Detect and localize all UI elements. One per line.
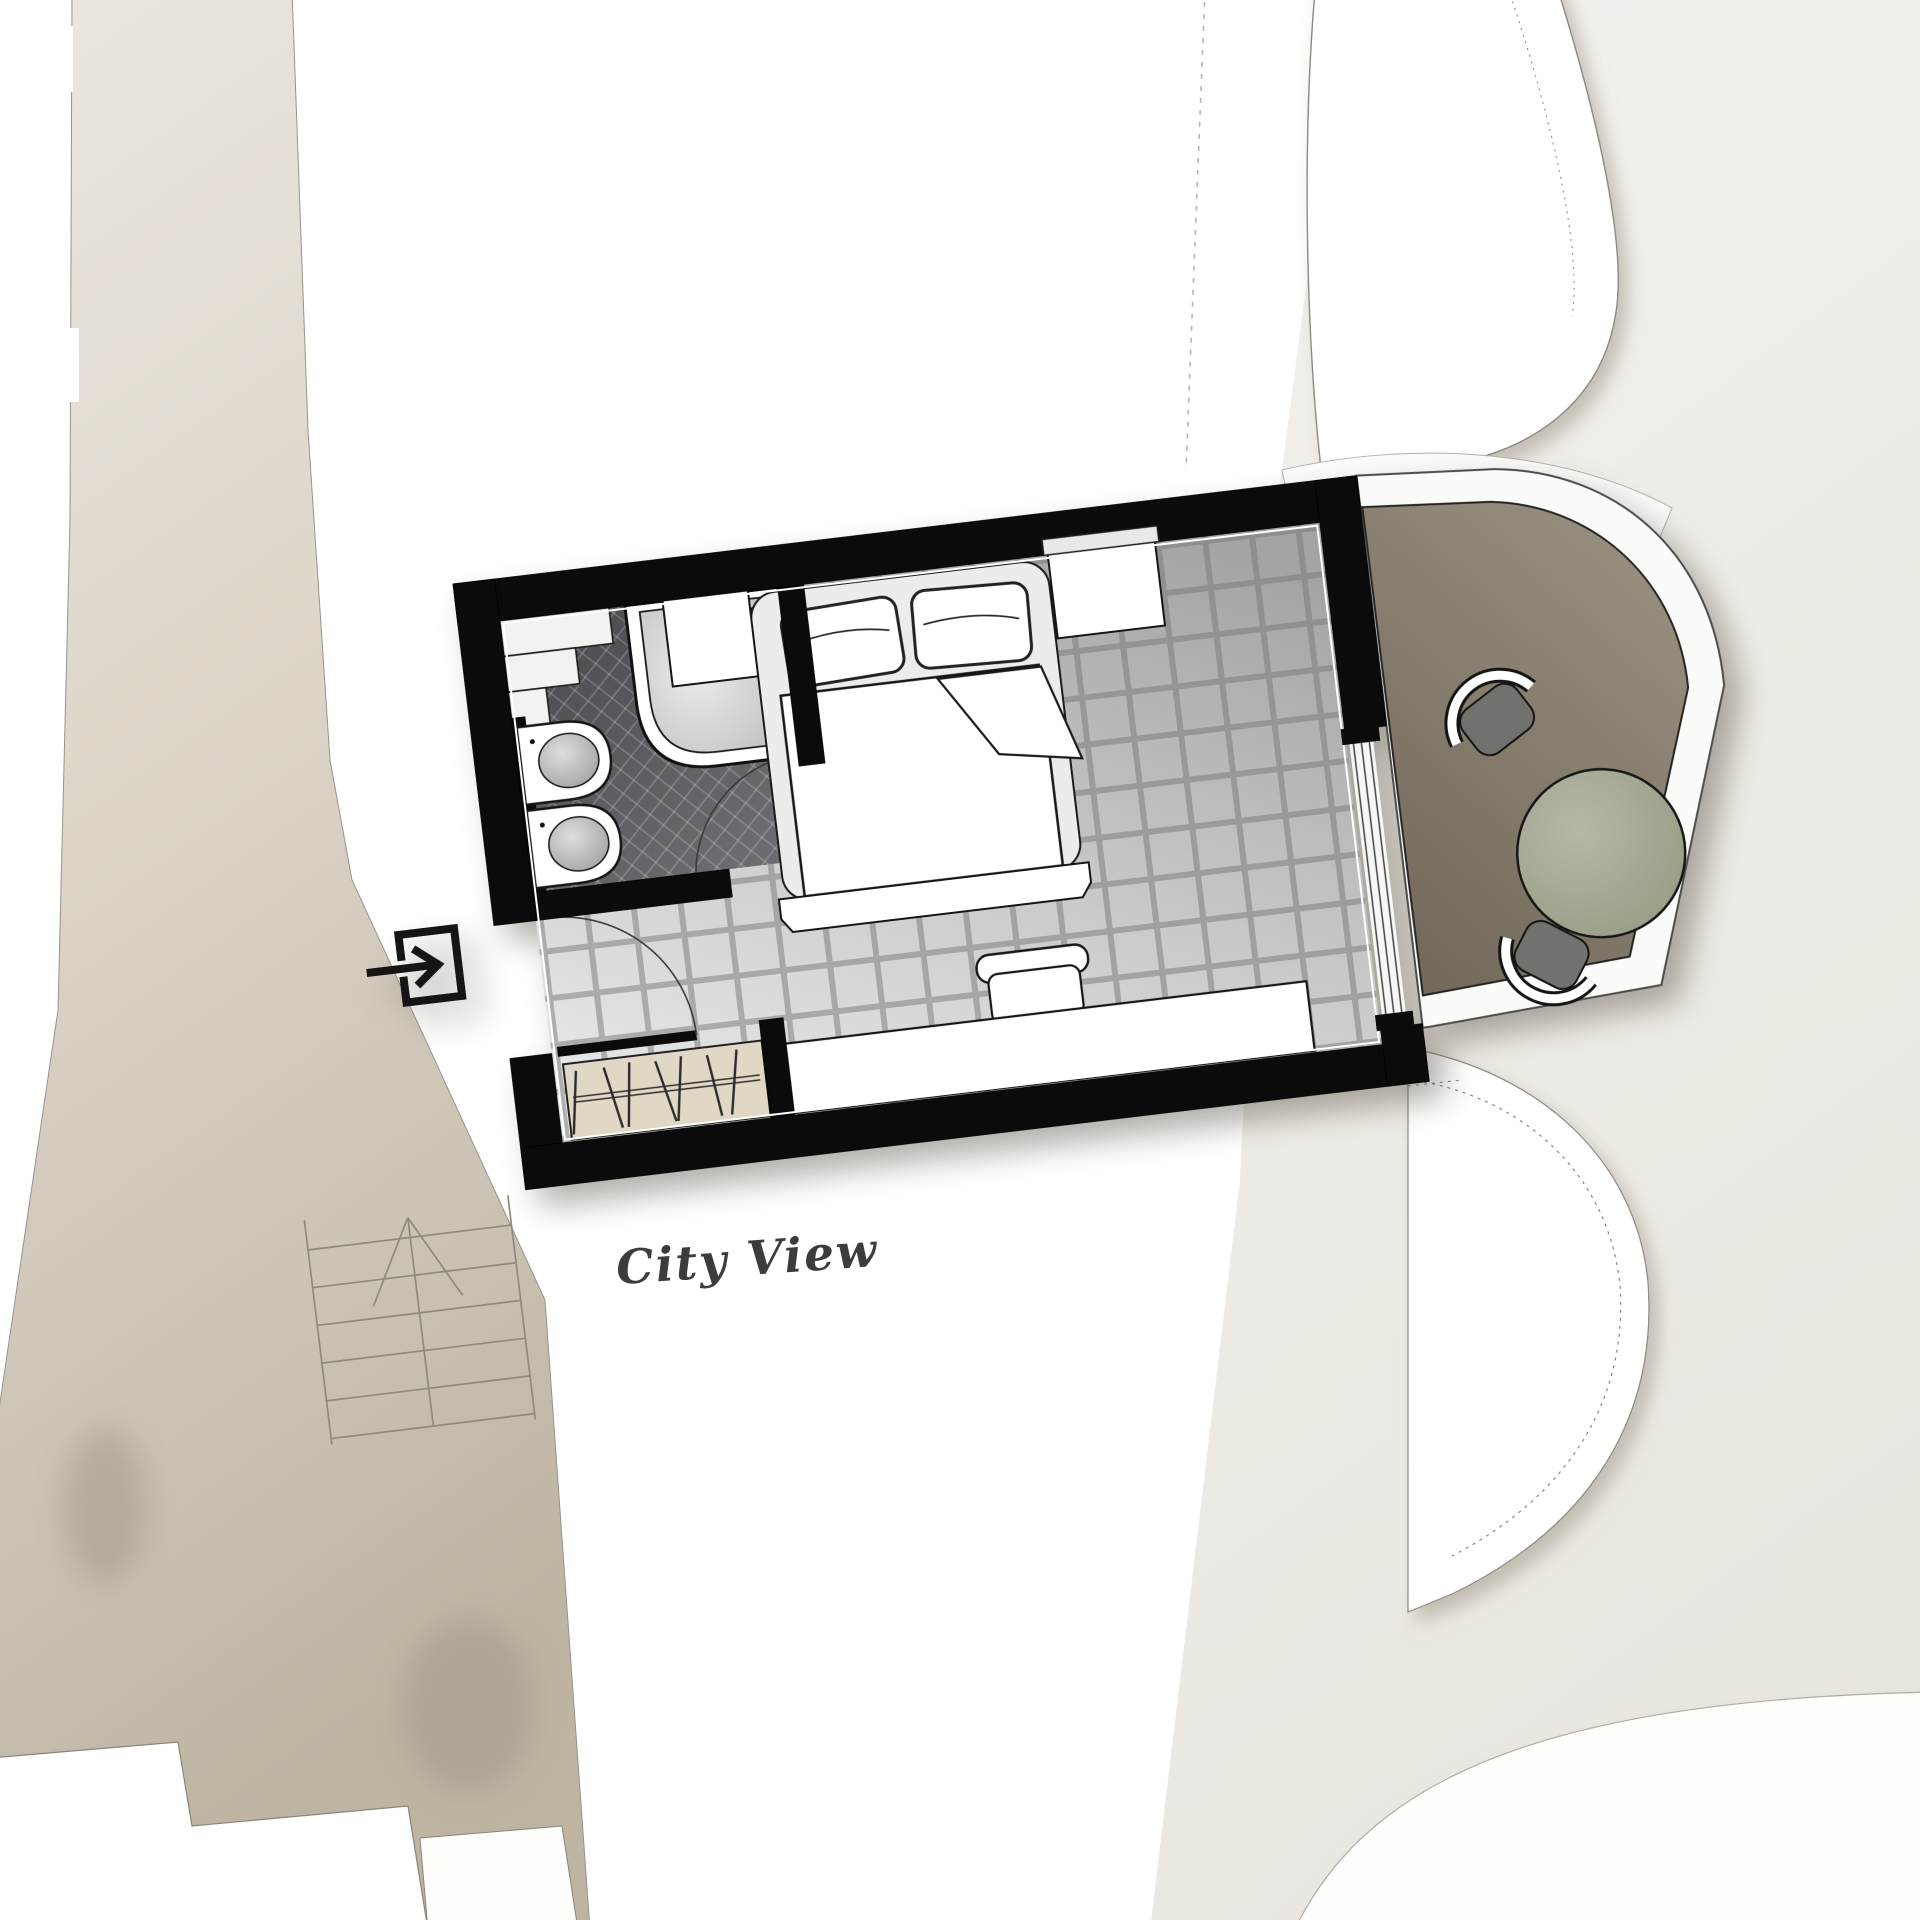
shadow-blob <box>63 1427 147 1583</box>
balcony <box>1357 435 1761 1033</box>
building-footprint <box>420 1826 578 1920</box>
facade-step-notch <box>64 328 79 402</box>
facade-step-notch <box>58 26 73 92</box>
pillow-right <box>911 582 1033 670</box>
facade-dashed-line <box>1186 0 1205 470</box>
shadow-blob <box>402 1617 534 1793</box>
entry-arrow-icon <box>367 928 462 1006</box>
